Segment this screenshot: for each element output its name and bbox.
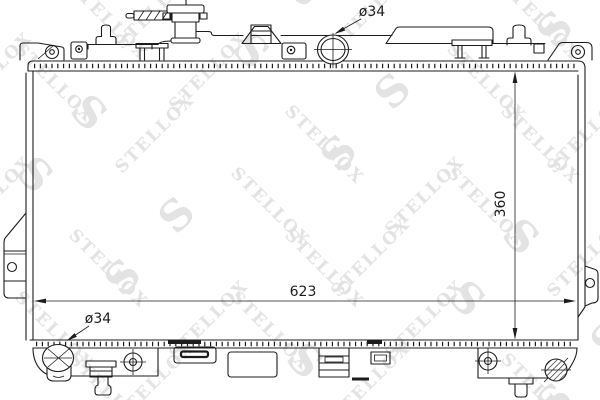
drawing-canvas: SSTELLOXSTELLOXSSTELLOXSTELLOXSSTELLOXST… bbox=[0, 0, 600, 400]
dot-bracket bbox=[282, 43, 306, 59]
radiator-technical-drawing: SSTELLOXSTELLOXSSTELLOXSTELLOXSSTELLOXST… bbox=[0, 0, 600, 400]
height-dimension-label: 360 bbox=[493, 191, 509, 218]
weld-mark-3 bbox=[367, 341, 382, 345]
width-dimension-label: 623 bbox=[290, 284, 317, 300]
weld-mark-2 bbox=[352, 378, 369, 381]
weld-mark-1 bbox=[168, 341, 201, 345]
filler-diameter-label: ø34 bbox=[359, 4, 385, 20]
drain-plug bbox=[43, 345, 74, 382]
drain-diameter-label: ø34 bbox=[85, 311, 111, 327]
